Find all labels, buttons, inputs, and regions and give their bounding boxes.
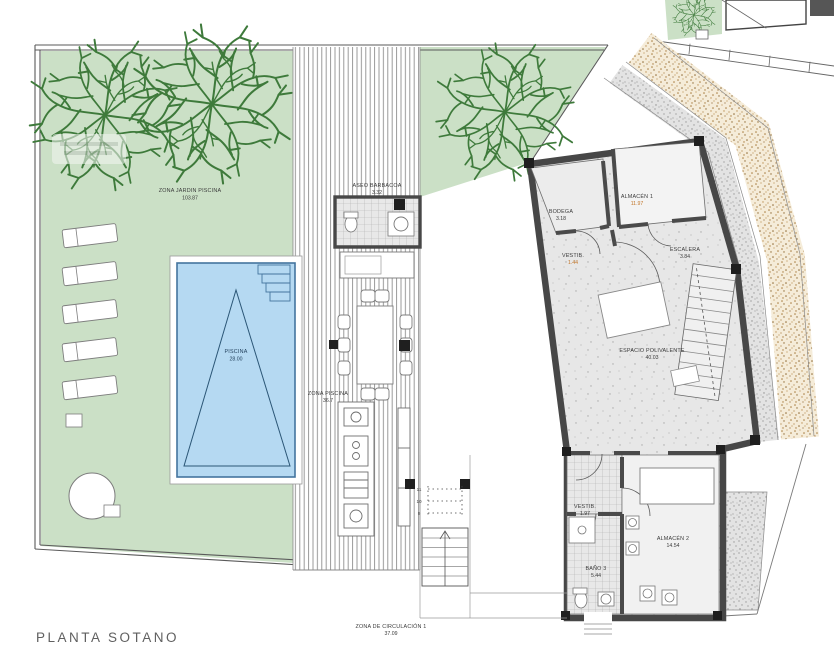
watermark xyxy=(52,134,126,164)
step-number: 10 xyxy=(416,499,422,504)
swimming-pool xyxy=(170,256,302,484)
page-title: PLANTA SOTANO xyxy=(36,630,179,645)
room-label-almacen-2: ALMACÉN 2 xyxy=(657,535,689,542)
room-label-zona-piscina: ZONA PISCINA xyxy=(308,391,348,397)
room-label-jardin: ZONA JARDIN PISCINA xyxy=(159,188,222,194)
room-area-vestibulo-1: 1.44 xyxy=(568,260,578,266)
column-marker xyxy=(394,199,405,210)
room-area-zona-piscina: 36.7 xyxy=(323,398,333,404)
room-label-bodega: BODEGA xyxy=(549,209,573,215)
sink-icon xyxy=(601,594,611,604)
room-area-piscina: 28.00 xyxy=(230,357,243,363)
room-label-vestibulo-2: VESTIB. xyxy=(574,504,596,510)
room-area-escalera: 3.84 xyxy=(680,254,690,260)
room-label-almacen-1: ALMACÉN 1 xyxy=(621,193,653,200)
room-label-bano-3: BAÑO 3 xyxy=(586,565,607,572)
room-label-piscina: PISCINA xyxy=(225,349,248,355)
room-label-aseo-barbacoa: ASEO BARBACOA xyxy=(352,183,401,189)
room-area-bano-3: 5.44 xyxy=(591,573,601,579)
bbq-sink-icon xyxy=(351,412,361,422)
exterior-door-gap xyxy=(584,612,612,623)
room-area-bodega: 3.18 xyxy=(556,216,566,222)
room-area-aseo-barbacoa: 3.32 xyxy=(372,190,382,196)
room-label-circulacion: ZONA DE CIRCULACIÓN 1 xyxy=(356,623,427,630)
column-marker xyxy=(399,340,410,351)
room-label-espacio-polivalente: ESPACIO POLIVALENTE xyxy=(619,348,685,354)
toilet-icon xyxy=(575,592,587,608)
step-number: 11 xyxy=(417,487,422,492)
bbq-hob-icon xyxy=(350,510,362,522)
almacen-2-platform xyxy=(640,468,714,504)
room-area-almacen-2: 14.54 xyxy=(667,543,680,549)
room-label-escalera: ESCALERA xyxy=(670,247,701,253)
room-area-circulacion: 37.09 xyxy=(385,631,398,637)
column-marker xyxy=(460,479,470,489)
room-area-jardin: 103.87 xyxy=(182,196,198,202)
room-area-vestibulo-2: 1.97 xyxy=(580,511,590,517)
sink-icon xyxy=(394,217,408,231)
room-label-vestibulo-1: VESTIB. xyxy=(562,253,584,259)
floor-plan-page: 11 10 9 ZONA JARDIN PISCINA 103.87 PISCI… xyxy=(0,0,834,664)
room-area-espacio-polivalente: 40.03 xyxy=(646,355,659,361)
dining-table xyxy=(357,306,393,384)
room-area-almacen-1: 11.97 xyxy=(631,201,644,207)
step-number: 9 xyxy=(418,511,421,516)
column-marker xyxy=(405,479,415,489)
room-aseo-barbacoa xyxy=(335,197,420,278)
exterior-staircase xyxy=(422,528,468,586)
barbecue-counter xyxy=(338,402,410,536)
column-marker xyxy=(329,340,338,349)
room-almacen-1-floor xyxy=(614,142,706,227)
floor-plan-drawing: 11 10 9 ZONA JARDIN PISCINA 103.87 PISCI… xyxy=(0,0,834,664)
